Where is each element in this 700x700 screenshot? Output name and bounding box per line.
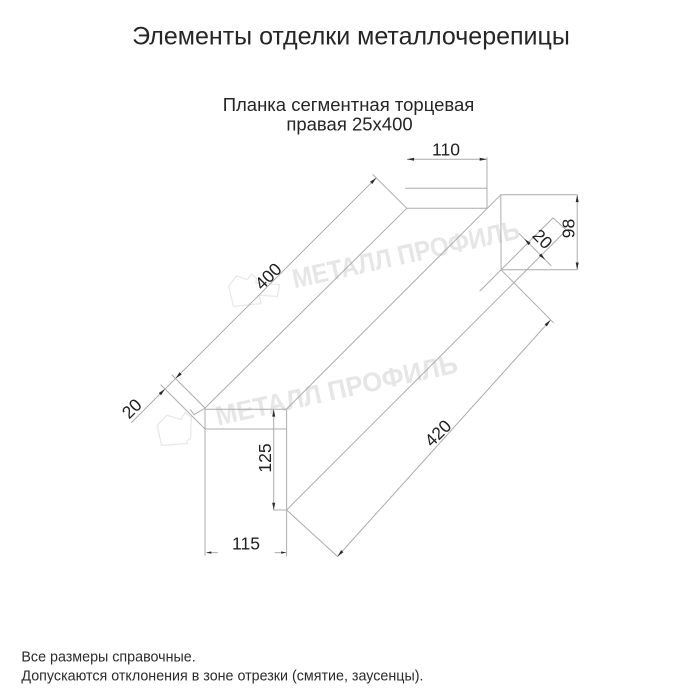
svg-text:110: 110 bbox=[432, 139, 460, 159]
svg-text:420: 420 bbox=[421, 416, 456, 451]
svg-text:125: 125 bbox=[255, 443, 275, 472]
svg-text:правая 25x400: правая 25x400 bbox=[286, 114, 412, 135]
svg-text:Элементы отделки металлочерепи: Элементы отделки металлочерепицы bbox=[132, 22, 570, 50]
svg-text:Допускаются отклонения в зоне: Допускаются отклонения в зоне отрезки (с… bbox=[21, 668, 423, 684]
svg-text:МЕТАЛЛ ПРОФИЛЬ: МЕТАЛЛ ПРОФИЛЬ bbox=[213, 349, 461, 432]
svg-text:20: 20 bbox=[118, 394, 146, 422]
svg-text:115: 115 bbox=[232, 533, 260, 553]
svg-text:Планка сегментная торцевая: Планка сегментная торцевая bbox=[223, 94, 475, 115]
svg-text:98: 98 bbox=[559, 219, 579, 238]
svg-text:Все размеры справочные.: Все размеры справочные. bbox=[21, 650, 195, 666]
svg-text:МЕТАЛЛ ПРОФИЛЬ: МЕТАЛЛ ПРОФИЛЬ bbox=[289, 215, 522, 295]
svg-text:20: 20 bbox=[529, 225, 557, 253]
